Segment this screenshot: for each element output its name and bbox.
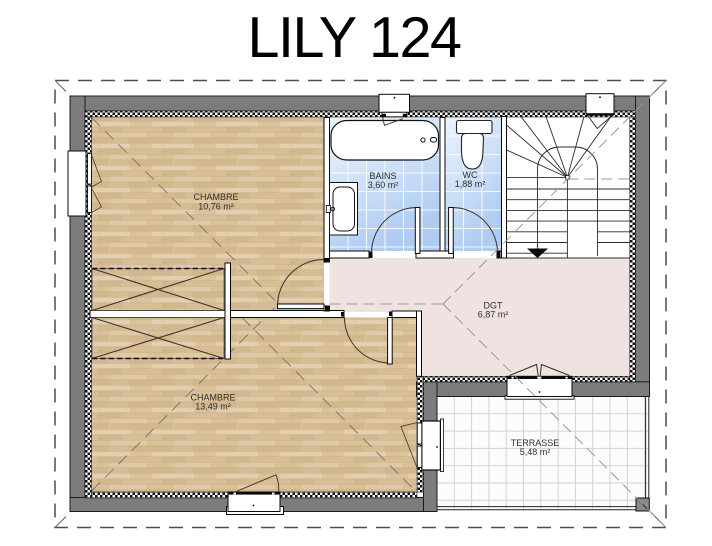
svg-text:LILY 124: LILY 124: [248, 6, 461, 70]
svg-text:3,60 m²: 3,60 m²: [368, 180, 399, 190]
svg-text:CHAMBRE: CHAMBRE: [193, 192, 238, 202]
svg-text:10,76 m²: 10,76 m²: [198, 202, 234, 212]
svg-text:1,88 m²: 1,88 m²: [455, 179, 486, 189]
svg-text:6,87 m²: 6,87 m²: [478, 310, 509, 320]
svg-text:5,48 m²: 5,48 m²: [520, 447, 551, 457]
svg-text:13,49 m²: 13,49 m²: [195, 402, 231, 412]
